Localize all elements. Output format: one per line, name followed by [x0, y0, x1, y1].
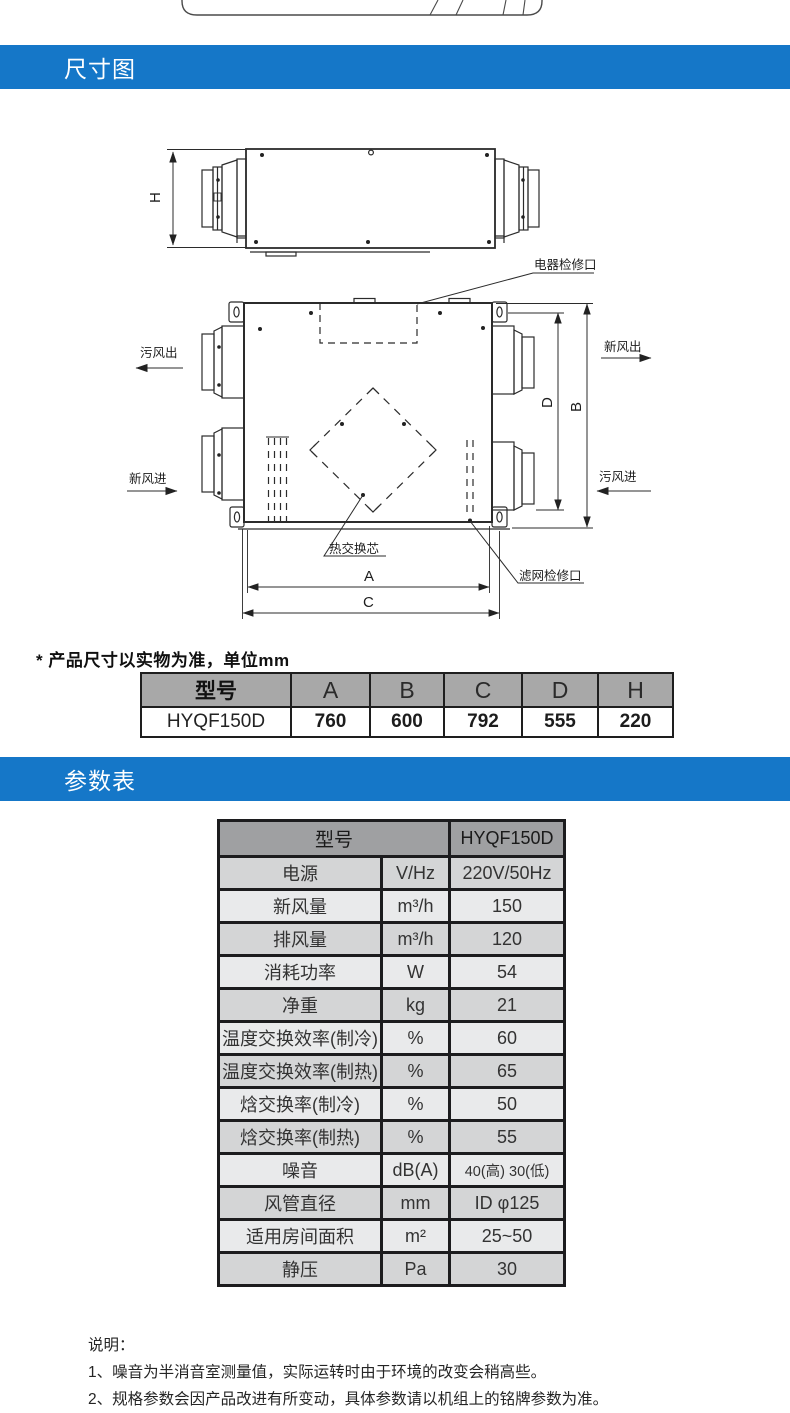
footnote-1: 1、噪音为半消音室测量值，实际运转时由于环境的改变会稍高些。	[88, 1359, 748, 1386]
dimension-table: 型号 A B C D H HYQF150D 760 600 792 555 22…	[140, 672, 674, 738]
section-title-dimensions: 尺寸图	[64, 50, 136, 84]
label-electrical-access: 电器检修口	[534, 257, 597, 272]
dimension-table-header-row: 型号 A B C D H	[142, 674, 672, 706]
dim-cell-d: 555	[523, 706, 599, 736]
param-row-exhaust-airflow: 排风量 m³/h 120	[220, 921, 563, 954]
heat-exchange-core	[310, 388, 436, 512]
dimension-diagram: H	[0, 0, 790, 660]
param-row-temp-efficiency-cooling: 温度交换效率(制冷) % 60	[220, 1020, 563, 1053]
dim-label-a: A	[364, 568, 374, 585]
param-row-static-pressure: 静压 Pa 30	[220, 1251, 563, 1284]
section-title-parameters: 参数表	[64, 762, 136, 796]
dim-col-h: H	[599, 674, 672, 706]
electrical-access-opening	[320, 303, 417, 343]
dim-cell-h: 220	[599, 706, 672, 736]
label-exhaust-air-out: 污风出	[140, 346, 178, 360]
param-row-enthalpy-heating: 焓交换率(制热) % 55	[220, 1119, 563, 1152]
airflow-arrows	[127, 358, 651, 491]
dim-col-b: B	[371, 674, 445, 706]
label-fresh-air-in: 新风进	[129, 471, 167, 486]
footnotes-title: 说明：	[88, 1332, 748, 1359]
corner-brackets	[229, 302, 507, 527]
param-row-noise: 噪音 dB(A) 40(高) 30(低)	[220, 1152, 563, 1185]
param-header-row: 型号 HYQF150D	[220, 822, 563, 855]
dim-cell-c: 792	[445, 706, 523, 736]
label-heat-exchange-core: 热交换芯	[329, 541, 379, 556]
dim-col-a: A	[292, 674, 371, 706]
plan-ducts	[202, 326, 534, 510]
dimension-table-data-row: HYQF150D 760 600 792 555 220	[142, 706, 672, 736]
param-row-power: 电源 V/Hz 220V/50Hz	[220, 855, 563, 888]
dim-col-model: 型号	[142, 674, 292, 706]
parameter-table: 型号 HYQF150D 电源 V/Hz 220V/50Hz 新风量 m³/h 1…	[217, 819, 566, 1287]
elevation-view	[167, 149, 539, 256]
section-header-parameters: 参数表	[0, 757, 790, 801]
param-row-room-area: 适用房间面积 m² 25~50	[220, 1218, 563, 1251]
param-row-net-weight: 净重 kg 21	[220, 987, 563, 1020]
dim-cell-b: 600	[371, 706, 445, 736]
dim-col-c: C	[445, 674, 523, 706]
dim-cell-model: HYQF150D	[142, 706, 292, 736]
dim-label-c: C	[363, 594, 374, 611]
callout-leaders	[324, 273, 594, 583]
filter-right	[467, 440, 473, 512]
dim-label-h: H	[147, 192, 164, 203]
label-exhaust-air-in: 污风进	[599, 470, 637, 484]
section-header-dimensions: 尺寸图	[0, 45, 790, 89]
param-row-enthalpy-cooling: 焓交换率(制冷) % 50	[220, 1086, 563, 1119]
dim-label-b: B	[568, 402, 585, 412]
dim-cell-a: 760	[292, 706, 371, 736]
filter-left	[269, 438, 287, 523]
dim-label-d: D	[539, 397, 556, 408]
param-row-power-consumption: 消耗功率 W 54	[220, 954, 563, 987]
product-image-remnant	[182, 0, 542, 15]
param-row-fresh-airflow: 新风量 m³/h 150	[220, 888, 563, 921]
size-note: * 产品尺寸以实物为准，单位mm	[36, 646, 736, 671]
spec-sheet-page: H	[0, 0, 790, 1407]
dim-col-d: D	[523, 674, 599, 706]
footnote-2: 2、规格参数会因产品改进有所变动，具体参数请以机组上的铭牌参数为准。	[88, 1386, 748, 1413]
param-row-duct-diameter: 风管直径 mm ID φ125	[220, 1185, 563, 1218]
label-filter-access: 滤网检修口	[519, 568, 582, 583]
param-row-temp-efficiency-heating: 温度交换效率(制热) % 65	[220, 1053, 563, 1086]
plan-view	[202, 299, 534, 530]
param-table-body: 电源 V/Hz 220V/50Hz 新风量 m³/h 150 排风量 m³/h …	[220, 855, 563, 1284]
param-header-value: HYQF150D	[451, 822, 563, 855]
label-fresh-air-out: 新风出	[604, 339, 642, 354]
param-header-label: 型号	[220, 822, 451, 855]
footnotes: 说明： 1、噪音为半消音室测量值，实际运转时由于环境的改变会稍高些。 2、规格参…	[88, 1332, 748, 1413]
